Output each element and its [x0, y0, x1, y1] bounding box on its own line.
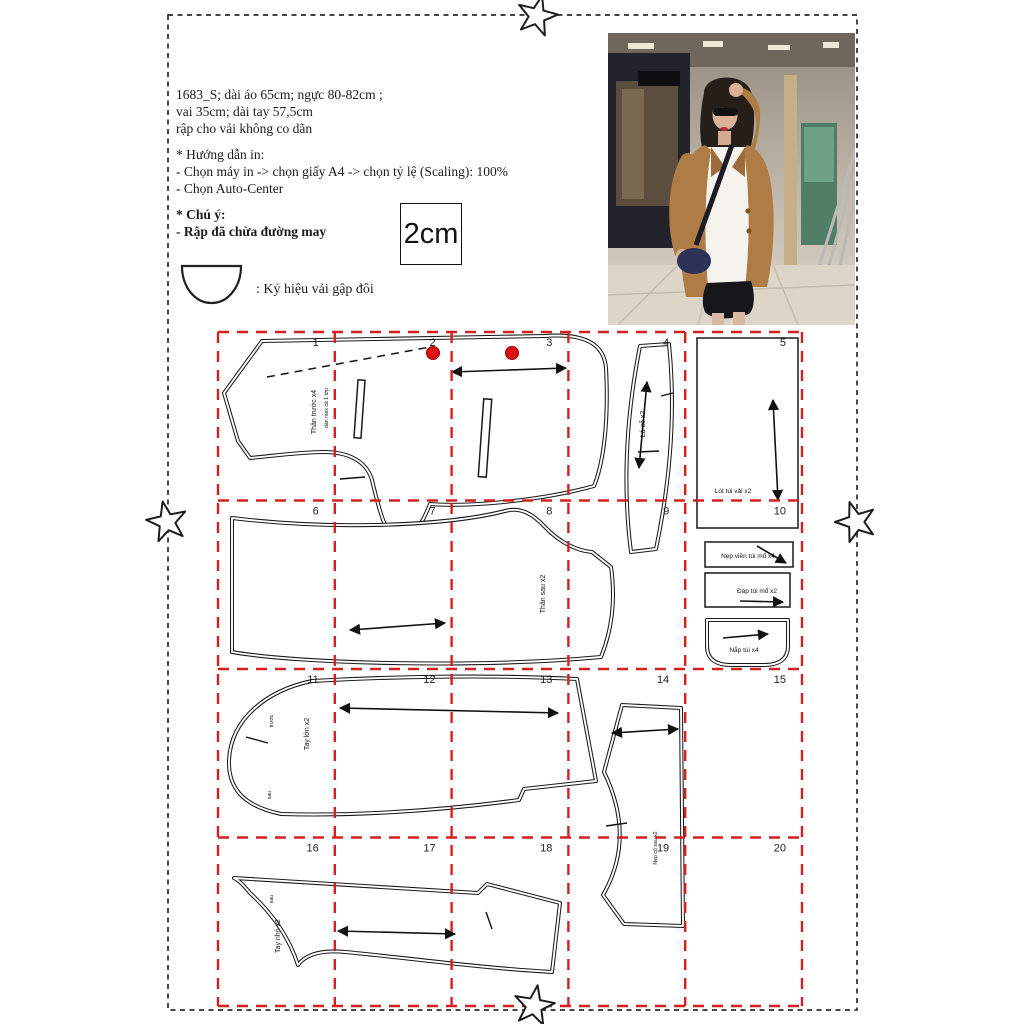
spec-line: rập cho vải không co dãn	[176, 120, 383, 137]
leg	[733, 312, 745, 325]
registration-star-top	[514, 0, 562, 37]
pocket-slot	[354, 380, 365, 438]
label-big-sleeve-back-mark: sau	[267, 791, 273, 799]
registration-star-bottom	[511, 982, 557, 1024]
label-collar: Lá cổ x2	[639, 411, 647, 438]
product-photo	[608, 33, 855, 325]
piece-pocket-flap	[707, 620, 788, 665]
label-front-note: dán mex cả 1 lớp	[324, 388, 330, 428]
lapel-roll-line	[267, 347, 430, 377]
pattern-spec: 1683_S; dài áo 65cm; ngực 80-82cm ; vai …	[176, 86, 383, 137]
piece-pocket-facing	[705, 573, 790, 607]
grain-arrow-flap	[723, 634, 768, 638]
scale-test-label: 2cm	[404, 218, 459, 251]
grid-cell-number: 13	[540, 674, 552, 686]
piece-side-panel	[603, 705, 683, 926]
label-pocket-bag: Lót túi vải x2	[715, 488, 752, 495]
print-guide-line: - Chọn máy in -> chọn giấy A4 -> chọn tỷ…	[176, 163, 508, 180]
grain-arrow-side-panel	[612, 729, 678, 733]
note-line: - Rập đã chừa đường may	[176, 223, 326, 240]
sunglasses	[713, 108, 738, 116]
label-big-sleeve-front-mark: trước	[269, 714, 275, 727]
grain-arrow-small-sleeve	[338, 931, 455, 934]
button-mark	[427, 347, 440, 360]
grid-cell-number: 3	[546, 337, 552, 349]
label-side-panel: Nẹp cổ sau x2	[652, 831, 659, 864]
scale-test-box: 2cm	[400, 203, 462, 265]
piece-front-body	[224, 336, 607, 540]
grain-arrow-big-sleeve	[340, 708, 558, 713]
label-pocket-facing: Đáp túi mổ x2	[737, 587, 777, 595]
fold-symbol-icon	[178, 263, 246, 307]
label-small-sleeve-back-mark: sau	[269, 895, 275, 903]
note-title: * Chú ý:	[176, 206, 326, 223]
grid-cell-number: 20	[774, 843, 786, 855]
piece-small-sleeve	[234, 878, 560, 972]
button-mark	[506, 347, 519, 360]
grain-arrow-collar	[639, 382, 647, 468]
label-small-sleeve: Tay nhỏ x2	[274, 919, 282, 953]
grain-arrow-welt	[757, 546, 786, 563]
print-guide: * Hướng dẫn in: - Chọn máy in -> chọn gi…	[176, 146, 508, 197]
piece-back-body	[232, 510, 613, 664]
grid-numbers: 1234567891011121314151617181920	[307, 337, 786, 855]
label-big-sleeve: Tay lớn x2	[304, 718, 311, 750]
registration-star-left	[143, 497, 190, 542]
pattern-layout: Thân trước x4 dán mex cả 1 lớp Lá cổ x2 …	[0, 0, 1024, 1024]
hand	[729, 83, 743, 97]
label-front-body: Thân trước x4	[311, 390, 318, 434]
label-welt: Nẹp viền túi mổ x4	[721, 551, 775, 560]
grid-cell-number: 6	[313, 506, 319, 518]
grid-cell-number: 16	[307, 843, 319, 855]
grid-cell-number: 2	[429, 337, 435, 349]
grain-arrow-pocket-bag	[773, 400, 778, 500]
spec-line: vai 35cm; dài tay 57,5cm	[176, 103, 383, 120]
grid-cell-number: 8	[546, 506, 552, 518]
piece-collar	[626, 344, 671, 552]
registration-star-right	[831, 496, 881, 544]
black-skirt	[703, 281, 754, 318]
piece-pocket-bag	[697, 338, 798, 528]
label-flap: Nắp túi x4	[729, 645, 759, 654]
grid-cell-number: 7	[429, 506, 435, 518]
fold-symbol-caption: : Ký hiệu vải gập đôi	[256, 272, 374, 298]
grid-cell-number: 15	[774, 674, 786, 686]
product-photo-illustration	[608, 33, 855, 325]
print-guide-line: - Chọn Auto-Center	[176, 180, 508, 197]
pattern-sheet-page: 1683_S; dài áo 65cm; ngực 80-82cm ; vai …	[0, 0, 1024, 1024]
grid-cell-number: 12	[423, 674, 435, 686]
notch-ticks	[246, 393, 673, 929]
spec-line: 1683_S; dài áo 65cm; ngực 80-82cm ;	[176, 86, 383, 103]
fold-symbol-row: : Ký hiệu vải gập đôi	[178, 263, 374, 307]
label-back-body: Thân sau x2	[540, 575, 547, 614]
grid-cell-number: 11	[307, 674, 318, 686]
grid-cell-number: 19	[657, 843, 669, 855]
print-tile-grid	[218, 332, 802, 1006]
grid-cell-number: 1	[313, 337, 319, 349]
grain-arrow-back	[350, 623, 445, 630]
grid-cell-number: 10	[774, 506, 786, 518]
pocket-slot	[478, 399, 491, 477]
piece-big-sleeve	[229, 677, 596, 815]
shoulder-bag	[677, 248, 711, 274]
gold-pillar	[784, 75, 797, 283]
print-guide-title: * Hướng dẫn in:	[176, 146, 508, 163]
grid-cell-number: 14	[657, 674, 669, 686]
lips	[720, 127, 728, 131]
grain-arrow-front	[452, 368, 566, 372]
grain-arrow-facing	[740, 601, 783, 602]
grid-cell-number: 17	[423, 843, 435, 855]
grid-cell-number: 18	[540, 843, 552, 855]
piece-pocket-welt	[705, 542, 793, 567]
grid-cell-number: 5	[780, 337, 786, 349]
note-block: * Chú ý: - Rập đã chừa đường may	[176, 206, 326, 240]
grid-cell-number: 9	[663, 506, 669, 518]
grid-cell-number: 4	[663, 337, 669, 349]
leg	[712, 313, 724, 325]
